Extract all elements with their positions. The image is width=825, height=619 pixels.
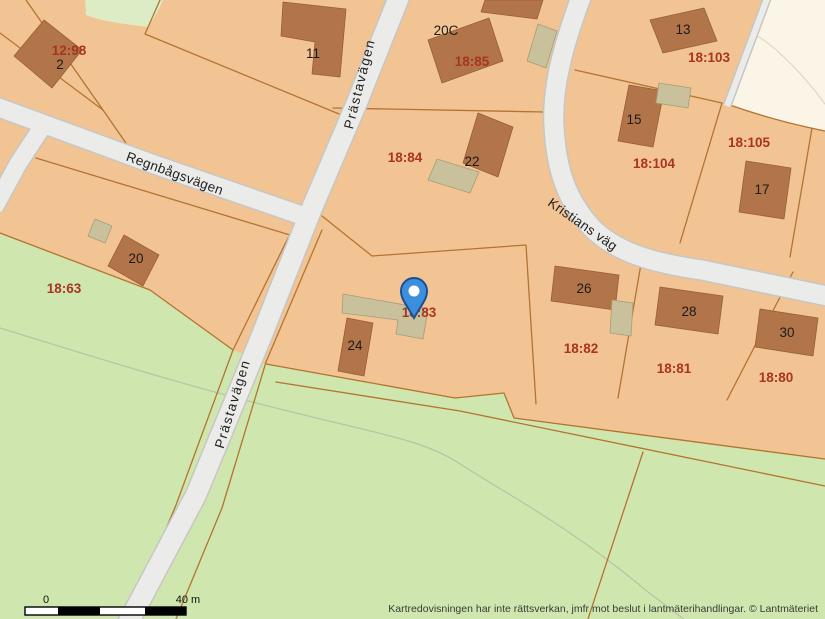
parcel-label-18-82: 18:82 (564, 341, 599, 356)
building-label-26: 26 (576, 281, 591, 296)
parcel-label-18-81: 18:81 (657, 361, 692, 376)
building-label-11: 11 (306, 46, 320, 61)
attribution: Kartredovisningen har inte rättsverkan, … (388, 603, 818, 615)
building-label-24: 24 (347, 338, 363, 353)
parcel-label-18-84: 18:84 (388, 150, 423, 165)
outbuilding (610, 300, 633, 336)
building-label-30: 30 (779, 325, 794, 340)
scale-bar-segment (58, 607, 100, 615)
pin-center-dot (409, 286, 420, 297)
building-label-13: 13 (675, 22, 690, 37)
building-label-15: 15 (626, 112, 641, 127)
parcel-label-18-80: 18:80 (759, 370, 794, 385)
parcel-label-18-105: 18:105 (728, 135, 771, 150)
parcel-label-18-103: 18:103 (688, 50, 731, 65)
scale-bar-end-label: 40 m (176, 594, 200, 606)
parcel-label-12-98: 12:98 (52, 43, 87, 58)
parcel-label-18-85: 18:85 (455, 54, 490, 69)
parcel-label-18-104: 18:104 (633, 156, 676, 171)
building-label-28: 28 (681, 304, 696, 319)
building-label-2: 2 (56, 57, 64, 72)
building-label-17: 17 (754, 182, 769, 197)
scale-bar-start-label: 0 (43, 594, 49, 606)
map-viewport[interactable]: 12:98 18:63 18:85 18:84 18:103 18:104 18… (0, 0, 825, 619)
parcel-label-18-63: 18:63 (47, 281, 82, 296)
building-label-20: 20 (128, 251, 143, 266)
map-canvas[interactable]: 12:98 18:63 18:85 18:84 18:103 18:104 18… (0, 0, 825, 619)
building-label-20c: 20C (434, 23, 459, 38)
scale-bar-segment (145, 607, 186, 615)
building-label-22: 22 (464, 154, 479, 169)
